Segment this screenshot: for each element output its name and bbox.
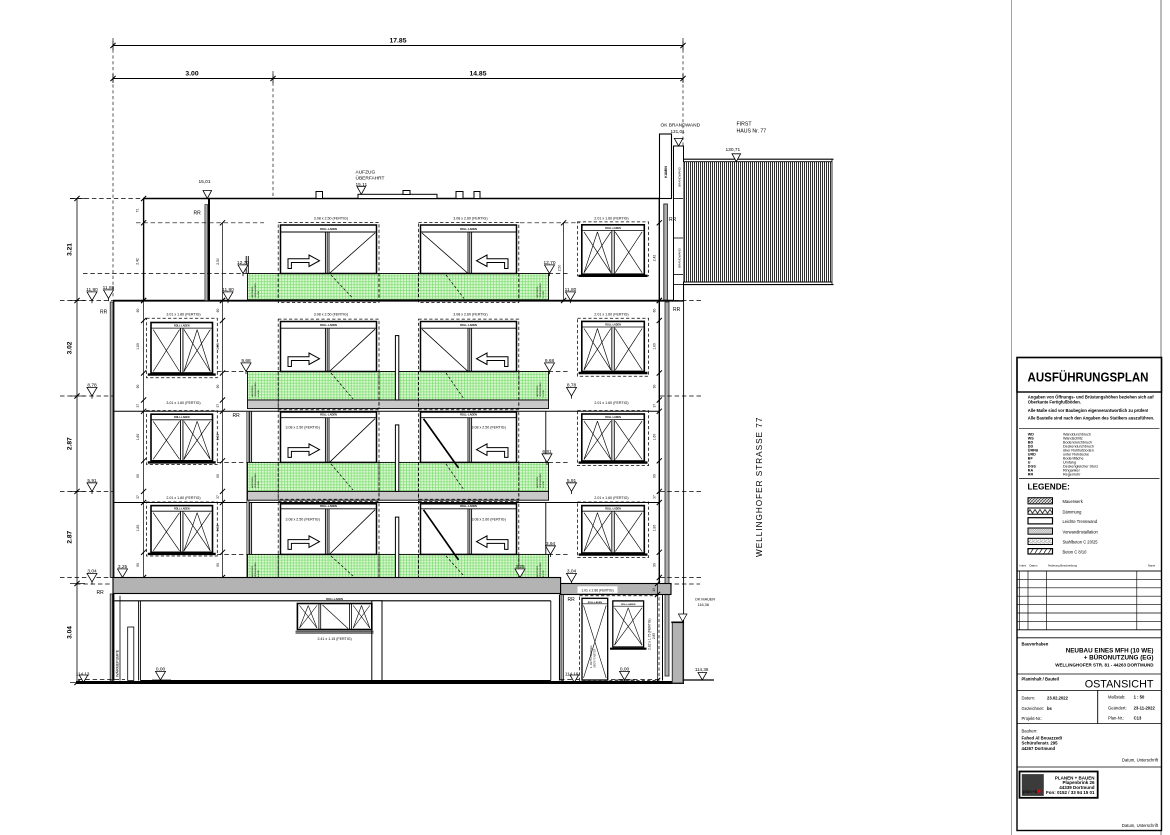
svg-text:2.42: 2.42 bbox=[136, 258, 140, 265]
svg-text:ABSTURZS.: ABSTURZS. bbox=[536, 565, 539, 577]
svg-text:Oberkante Fertigfußböden.: Oberkante Fertigfußböden. bbox=[1028, 400, 1081, 405]
svg-text:VERGLASUNG: VERGLASUNG bbox=[254, 283, 257, 298]
svg-text:h=1.00: h=1.00 bbox=[258, 389, 260, 396]
svg-text:h=1.00: h=1.00 bbox=[543, 570, 545, 577]
svg-text:ABSTURZS.: ABSTURZS. bbox=[536, 476, 539, 488]
svg-text:15,01: 15,01 bbox=[199, 179, 211, 185]
svg-text:Maßstab:: Maßstab: bbox=[1108, 695, 1125, 700]
svg-text:RR: RR bbox=[100, 310, 108, 316]
svg-text:23-11-2022: 23-11-2022 bbox=[1134, 706, 1156, 711]
svg-text:114,36: 114,36 bbox=[695, 667, 709, 672]
svg-text:VERGLASUNG: VERGLASUNG bbox=[254, 382, 257, 397]
svg-text:71: 71 bbox=[136, 209, 140, 213]
svg-text:Projekt-Nr.:: Projekt-Nr.: bbox=[1022, 716, 1043, 721]
svg-text:3,04: 3,04 bbox=[567, 568, 577, 574]
svg-text:Bauvorhaben: Bauvorhaben bbox=[1022, 641, 1049, 646]
svg-text:ROLL-LADEN: ROLL-LADEN bbox=[460, 323, 477, 327]
svg-text:ROLL-LADEN: ROLL-LADEN bbox=[605, 227, 621, 230]
svg-text:60: 60 bbox=[136, 309, 140, 313]
svg-text:2.41 x 1.15 (FERTIG): 2.41 x 1.15 (FERTIG) bbox=[317, 637, 351, 641]
svg-text:ABSTURZS.: ABSTURZS. bbox=[251, 286, 254, 298]
svg-text:5,91: 5,91 bbox=[567, 478, 577, 484]
svg-text:WELLINGHOFER STRASSE 77: WELLINGHOFER STRASSE 77 bbox=[755, 417, 764, 557]
svg-text:ROLL-LADEN: ROLL-LADEN bbox=[320, 413, 337, 417]
svg-text:19: 19 bbox=[652, 588, 656, 592]
svg-text:ROLL-LADEN: ROLL-LADEN bbox=[174, 416, 190, 419]
svg-text:ROLL-LADEN: ROLL-LADEN bbox=[605, 323, 621, 326]
svg-text:ABSTURZS.: ABSTURZS. bbox=[536, 286, 539, 298]
svg-text:2.87: 2.87 bbox=[67, 437, 74, 450]
svg-text:3,25: 3,25 bbox=[515, 564, 525, 570]
svg-text:1.80: 1.80 bbox=[136, 525, 140, 532]
svg-text:HAUS Nr. 77: HAUS Nr. 77 bbox=[737, 129, 767, 135]
svg-text:Beton C 8/10: Beton C 8/10 bbox=[1063, 549, 1088, 554]
svg-text:3.21: 3.21 bbox=[67, 243, 74, 256]
svg-text:3.02: 3.02 bbox=[67, 341, 74, 354]
svg-text:Mauerwerk: Mauerwerk bbox=[1063, 499, 1084, 504]
svg-text:1.80: 1.80 bbox=[216, 525, 220, 532]
svg-text:BRANDWAND: BRANDWAND bbox=[678, 166, 682, 186]
svg-text:1.01 x 2.86 (FERTIG): 1.01 x 2.86 (FERTIG) bbox=[581, 589, 613, 593]
svg-text:3.08 x 2.60 (FERTIG): 3.08 x 2.60 (FERTIG) bbox=[453, 216, 487, 220]
svg-text:11,80: 11,80 bbox=[86, 287, 98, 293]
svg-text:2.50: 2.50 bbox=[216, 258, 220, 265]
svg-text:12,70: 12,70 bbox=[543, 260, 555, 266]
svg-text:RR: RR bbox=[669, 217, 677, 223]
svg-text:VERGLASUNG: VERGLASUNG bbox=[254, 562, 257, 577]
svg-text:2.87: 2.87 bbox=[67, 530, 74, 543]
svg-text:NEUBAU EINES MFH (10 WE): NEUBAU EINES MFH (10 WE) bbox=[1066, 647, 1154, 654]
svg-text:FIRST: FIRST bbox=[737, 122, 753, 128]
svg-text:ROLL-LADEN: ROLL-LADEN bbox=[320, 227, 337, 231]
svg-text:90: 90 bbox=[653, 385, 657, 389]
svg-text:RR: RR bbox=[194, 210, 202, 216]
svg-text:90: 90 bbox=[136, 563, 140, 567]
svg-text:12,70: 12,70 bbox=[237, 260, 249, 266]
svg-text:3.04: 3.04 bbox=[67, 626, 74, 639]
svg-text:3,94: 3,94 bbox=[546, 541, 556, 547]
svg-text:Plan-Nr.:: Plan-Nr.: bbox=[1108, 716, 1124, 721]
svg-text:0,00: 0,00 bbox=[156, 666, 166, 672]
svg-text:3.00: 3.00 bbox=[185, 71, 198, 78]
svg-text:3.01 x 1.60 (FERTIG): 3.01 x 1.60 (FERTIG) bbox=[166, 401, 200, 405]
svg-text:90: 90 bbox=[216, 385, 220, 389]
svg-text:VERGLASUNG: VERGLASUNG bbox=[539, 283, 542, 298]
svg-text:OSTANSICHT: OSTANSICHT bbox=[1085, 679, 1154, 691]
svg-text:RR: RR bbox=[673, 307, 681, 313]
svg-text:Name: Name bbox=[1148, 564, 1156, 568]
svg-text:3.08 x 2.50 (FERTIG): 3.08 x 2.50 (FERTIG) bbox=[286, 517, 320, 521]
svg-text:h=1.00: h=1.00 bbox=[258, 290, 260, 297]
svg-text:WELLINGHOFER STR. 81 - 44263 D: WELLINGHOFER STR. 81 - 44263 DORTMUND bbox=[1055, 663, 1154, 668]
svg-text:2.50: 2.50 bbox=[558, 265, 562, 272]
svg-text:9,68: 9,68 bbox=[241, 358, 251, 364]
svg-text:RR: RR bbox=[568, 597, 576, 603]
svg-text:RR: RR bbox=[233, 413, 241, 419]
svg-text:plan+b: plan+b bbox=[1023, 789, 1038, 795]
svg-text:1.80: 1.80 bbox=[653, 525, 657, 532]
svg-text:Änderung Beschreibung: Änderung Beschreibung bbox=[1048, 564, 1077, 568]
svg-text:+ BÜRONUTZUNG (EG): + BÜRONUTZUNG (EG) bbox=[1084, 652, 1154, 661]
svg-text:44267 Dortmund: 44267 Dortmund bbox=[1022, 746, 1056, 751]
svg-text:37: 37 bbox=[216, 495, 220, 499]
svg-text:23.02.2022: 23.02.2022 bbox=[1047, 696, 1069, 701]
svg-text:Alle Bauteile sind nach den An: Alle Bauteile sind nach den Angaben des … bbox=[1028, 416, 1154, 421]
svg-text:90: 90 bbox=[136, 385, 140, 389]
svg-text:Dämmung: Dämmung bbox=[1063, 509, 1083, 514]
svg-text:3.08 x 2.60 (FERTIG): 3.08 x 2.60 (FERTIG) bbox=[472, 517, 506, 521]
svg-text:130,71: 130,71 bbox=[726, 147, 741, 153]
svg-text:17.85: 17.85 bbox=[389, 38, 406, 45]
svg-text:1 : 50: 1 : 50 bbox=[1134, 695, 1145, 700]
svg-text:Leichte Trennwand: Leichte Trennwand bbox=[1063, 519, 1098, 524]
svg-text:6,81: 6,81 bbox=[542, 449, 552, 455]
svg-text:WÄRMEPUMPE: WÄRMEPUMPE bbox=[116, 649, 120, 677]
svg-text:37: 37 bbox=[136, 495, 140, 499]
svg-text:3.08 x 2.50 (FERTIG): 3.08 x 2.50 (FERTIG) bbox=[314, 216, 348, 220]
svg-text:0,00: 0,00 bbox=[620, 666, 630, 672]
svg-text:60: 60 bbox=[653, 309, 657, 313]
svg-text:3.08 x 2.50 (FERTIG): 3.08 x 2.50 (FERTIG) bbox=[286, 426, 320, 430]
svg-text:116,38: 116,38 bbox=[698, 603, 709, 607]
svg-text:60: 60 bbox=[216, 309, 220, 313]
svg-text:11,88: 11,88 bbox=[103, 285, 115, 291]
svg-text:LEGENDE:: LEGENDE: bbox=[1028, 483, 1070, 492]
svg-text:VERGLASUNG: VERGLASUNG bbox=[254, 473, 257, 488]
svg-text:Fon: 0152 / 33 94 15 01: Fon: 0152 / 33 94 15 01 bbox=[1046, 790, 1095, 795]
svg-text:VERGLASUNG: VERGLASUNG bbox=[539, 473, 542, 488]
svg-text:37: 37 bbox=[136, 404, 140, 408]
svg-text:h=1.00: h=1.00 bbox=[543, 290, 545, 297]
svg-text:ROLL-LADEN: ROLL-LADEN bbox=[320, 323, 337, 327]
svg-text:2.42: 2.42 bbox=[653, 255, 657, 262]
svg-text:h=1.00: h=1.00 bbox=[543, 481, 545, 488]
svg-text:VERGLASUNG: VERGLASUNG bbox=[539, 382, 542, 397]
svg-text:RR: RR bbox=[97, 590, 105, 596]
svg-text:37: 37 bbox=[216, 404, 220, 408]
svg-text:KAMIN: KAMIN bbox=[664, 166, 668, 178]
svg-text:ROLL-LADEN: ROLL-LADEN bbox=[174, 325, 190, 328]
svg-text:ROLL-LADEN: ROLL-LADEN bbox=[588, 601, 603, 604]
svg-text:90: 90 bbox=[216, 563, 220, 567]
svg-text:ROLL-LADEN: ROLL-LADEN bbox=[326, 597, 343, 601]
svg-text:90: 90 bbox=[136, 474, 140, 478]
svg-text:1.60: 1.60 bbox=[653, 434, 657, 441]
svg-text:AUFZUG: AUFZUG bbox=[356, 170, 376, 176]
svg-text:11,80: 11,80 bbox=[222, 287, 234, 293]
svg-text:14.85: 14.85 bbox=[469, 71, 486, 78]
svg-text:ÜBERFAHRT: ÜBERFAHRT bbox=[356, 175, 385, 182]
svg-text:90: 90 bbox=[653, 474, 657, 478]
svg-text:ABSTURZS.: ABSTURZS. bbox=[536, 385, 539, 397]
svg-text:131,01: 131,01 bbox=[671, 129, 685, 134]
svg-text:ABSTURZS.: ABSTURZS. bbox=[251, 385, 254, 397]
svg-text:ROLL-LADEN: ROLL-LADEN bbox=[621, 603, 636, 606]
svg-text:VERGLASUNG: VERGLASUNG bbox=[539, 562, 542, 577]
svg-text:3.08 x 2.50 (FERTIG): 3.08 x 2.50 (FERTIG) bbox=[472, 426, 506, 430]
svg-text:90: 90 bbox=[216, 474, 220, 478]
svg-text:ÜBER FENSTER: ÜBER FENSTER bbox=[594, 648, 597, 668]
svg-text:ROLL-LADEN: ROLL-LADEN bbox=[460, 413, 477, 417]
svg-text:2.01 x 1.60 (FERTIG): 2.01 x 1.60 (FERTIG) bbox=[594, 496, 628, 500]
svg-text:Datum:: Datum: bbox=[1022, 696, 1036, 701]
svg-text:11,80: 11,80 bbox=[565, 287, 577, 293]
svg-text:Gezeichnet:: Gezeichnet: bbox=[1022, 706, 1044, 711]
svg-text:h=1.00: h=1.00 bbox=[543, 389, 545, 396]
svg-text:2.01 x 1.60 (FERTIG): 2.01 x 1.60 (FERTIG) bbox=[594, 216, 628, 220]
svg-text:h=1.00: h=1.00 bbox=[258, 481, 260, 488]
svg-text:Datum, Unterschrift: Datum, Unterschrift bbox=[1122, 823, 1159, 828]
svg-text:C13: C13 bbox=[1134, 716, 1142, 721]
svg-text:ROLL-LADEN: ROLL-LADEN bbox=[605, 416, 621, 419]
svg-text:2.85: 2.85 bbox=[652, 633, 656, 639]
svg-text:1.80: 1.80 bbox=[136, 343, 140, 350]
svg-text:90: 90 bbox=[653, 563, 657, 567]
svg-text:5,91: 5,91 bbox=[87, 478, 97, 484]
svg-text:h=1.00: h=1.00 bbox=[258, 570, 260, 577]
svg-text:ABSTURZS.: ABSTURZS. bbox=[251, 565, 254, 577]
svg-text:Datum: Datum bbox=[1030, 564, 1039, 568]
svg-text:Datum, Unterschrift: Datum, Unterschrift bbox=[1122, 758, 1159, 763]
svg-text:ROLL-LADEN: ROLL-LADEN bbox=[320, 504, 337, 508]
svg-text:ROLL-LADEN: ROLL-LADEN bbox=[174, 508, 190, 511]
svg-text:3,25: 3,25 bbox=[118, 564, 128, 570]
svg-text:OK MAUER: OK MAUER bbox=[695, 598, 716, 602]
svg-text:37: 37 bbox=[653, 495, 657, 499]
svg-text:3.08 x 2.60 (FERTIG): 3.08 x 2.60 (FERTIG) bbox=[453, 313, 487, 317]
svg-text:2.01 x 1.80 (FERTIG): 2.01 x 1.80 (FERTIG) bbox=[166, 496, 200, 500]
svg-text:ROLL-LADEN: ROLL-LADEN bbox=[605, 508, 621, 511]
svg-text:Vorwandinstallation: Vorwandinstallation bbox=[1063, 529, 1099, 534]
svg-text:Index: Index bbox=[1020, 564, 1027, 568]
svg-text:OK BRANDWAND: OK BRANDWAND bbox=[661, 123, 701, 129]
svg-text:9,68: 9,68 bbox=[545, 358, 555, 364]
svg-text:Planinhalt / Bauteil: Planinhalt / Bauteil bbox=[1022, 677, 1059, 682]
svg-text:RR: RR bbox=[1028, 472, 1034, 476]
svg-text:1.80: 1.80 bbox=[216, 343, 220, 350]
svg-text:bs: bs bbox=[1047, 706, 1053, 711]
svg-text:Geändert:: Geändert: bbox=[1108, 706, 1127, 711]
svg-text:1.60: 1.60 bbox=[216, 434, 220, 441]
svg-text:ROLL-LADEN: ROLL-LADEN bbox=[460, 227, 477, 231]
svg-text:3.01 x 1.80 (FERTIG): 3.01 x 1.80 (FERTIG) bbox=[166, 312, 200, 316]
svg-text:3,04: 3,04 bbox=[87, 568, 97, 574]
svg-text:Bauherr:: Bauherr: bbox=[1022, 729, 1038, 734]
svg-text:1.60: 1.60 bbox=[136, 434, 140, 441]
svg-text:8,78: 8,78 bbox=[87, 382, 97, 388]
svg-text:3.08 x 2.50 (FERTIG): 3.08 x 2.50 (FERTIG) bbox=[314, 313, 348, 317]
svg-text:37: 37 bbox=[653, 404, 657, 408]
svg-text:8,78: 8,78 bbox=[567, 382, 577, 388]
svg-text:ABSTURZS.: ABSTURZS. bbox=[251, 476, 254, 488]
svg-text:1.80: 1.80 bbox=[653, 343, 657, 350]
svg-text:2.01 x 1.60 (FERTIG): 2.01 x 1.60 (FERTIG) bbox=[594, 401, 628, 405]
svg-text:2.01 x 1.60 (FERTIG): 2.01 x 1.60 (FERTIG) bbox=[594, 313, 628, 317]
svg-text:ROLL-LADEN: ROLL-LADEN bbox=[460, 504, 477, 508]
svg-text:AUSFÜHRUNGSPLAN: AUSFÜHRUNGSPLAN bbox=[1028, 370, 1149, 385]
svg-text:Regenrohr: Regenrohr bbox=[1063, 472, 1081, 476]
svg-text:BRANDWAND: BRANDWAND bbox=[678, 247, 682, 267]
svg-text:Alle Maße sind vor Baubeginn e: Alle Maße sind vor Baubeginn eigenverant… bbox=[1028, 408, 1149, 413]
svg-text:Stahlbeton C 20/25: Stahlbeton C 20/25 bbox=[1063, 540, 1099, 545]
